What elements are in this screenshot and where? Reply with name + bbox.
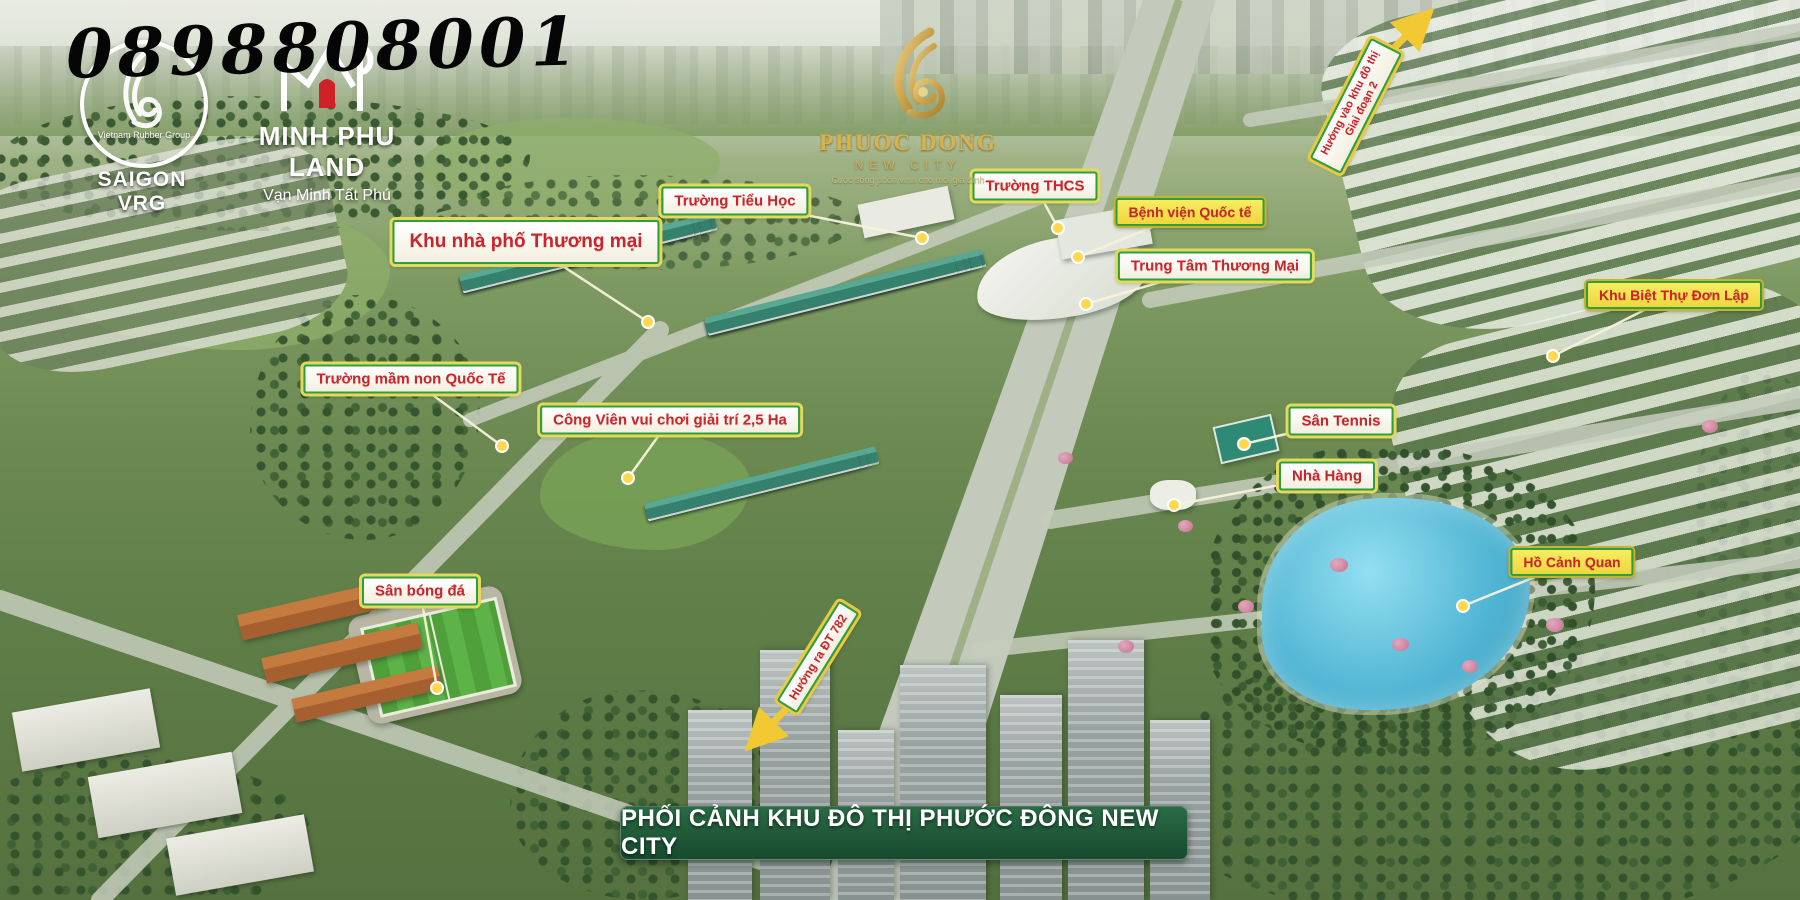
minh-phu-land-name: MINH PHU LAND xyxy=(222,121,432,183)
phuoc-dong-name: PHUOC DONG xyxy=(818,130,998,156)
map-label-khu-nha-pho-thuong-mai: Khu nhà phố Thương mại xyxy=(392,220,659,264)
map-label-san-bong-da: Sân bóng đá xyxy=(362,577,478,606)
map-label-nha-hang: Nhà Hàng xyxy=(1279,462,1375,491)
phuoc-dong-logo: PHUOC DONG NEW CITY Cuộc sống phồn vinh … xyxy=(818,26,998,185)
map-label-truong-tieu-hoc: Trường Tiểu Học xyxy=(661,187,808,216)
title-banner: PHỐI CẢNH KHU ĐÔ THỊ PHƯỚC ĐÔNG NEW CITY xyxy=(620,806,1188,860)
map-label-benh-vien-quoc-te: Bệnh viện Quốc tế xyxy=(1116,198,1265,226)
masterplan-poster: Khu nhà phố Thương mại Trường Tiểu Học T… xyxy=(0,0,1800,900)
phuoc-dong-subtitle: NEW CITY xyxy=(818,158,998,172)
phone-number: 0898808001 xyxy=(65,1,583,93)
saigon-vrg-name: SAIGON VRG xyxy=(72,168,212,216)
map-label-ho-canh-quan: Hồ Cảnh Quan xyxy=(1510,548,1633,576)
map-label-khu-biet-thu-don-lap: Khu Biệt Thự Đơn Lập xyxy=(1586,281,1762,309)
vrg-ring-text: Vietnam Rubber Group xyxy=(98,130,190,140)
map-label-trung-tam-thuong-mai: Trung Tâm Thương Mại xyxy=(1118,252,1312,281)
map-label-truong-mam-non-quoc-te: Trường mầm non Quốc Tế xyxy=(303,365,518,394)
map-label-san-tennis: Sân Tennis xyxy=(1289,407,1394,436)
phuoc-dong-tagline: Cuộc sống phồn vinh cho mọi gia đình xyxy=(818,175,998,185)
map-label-cong-vien-vui-choi: Công Viên vui chơi giải trí 2,5 Ha xyxy=(540,406,800,435)
minh-phu-land-tagline: Vạn Minh Tất Phú xyxy=(222,187,432,205)
gold-feather-icon xyxy=(860,26,956,130)
